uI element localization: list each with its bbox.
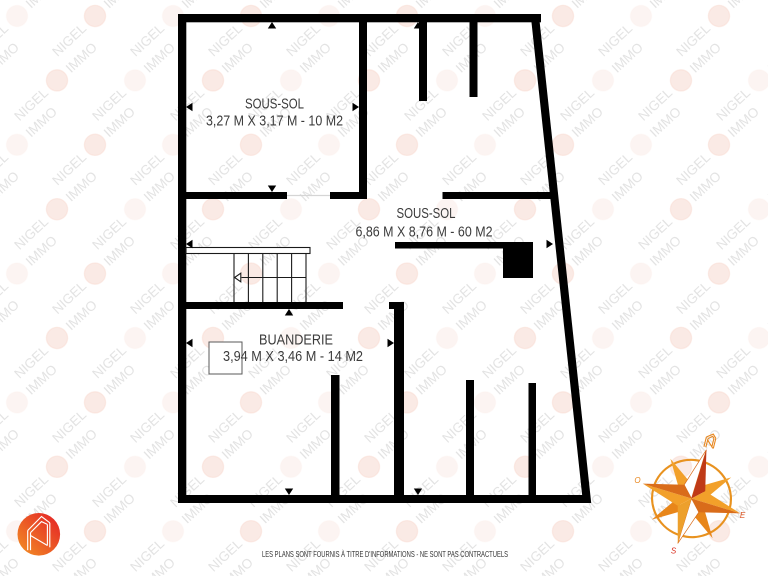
svg-text:3,27 M X 3,17 M - 10 M2: 3,27 M X 3,17 M - 10 M2 (206, 114, 343, 130)
svg-text:6,86 M X 8,76 M - 60 M2: 6,86 M X 8,76 M - 60 M2 (356, 225, 493, 241)
svg-text:LES PLANS SONT FOURNIS À TITRE: LES PLANS SONT FOURNIS À TITRE D'INFORMA… (262, 549, 508, 559)
svg-text:SOUS-SOL: SOUS-SOL (245, 97, 304, 113)
svg-text:3,94 M X 3,46 M - 14 M2: 3,94 M X 3,46 M - 14 M2 (223, 349, 363, 365)
svg-text:E: E (740, 511, 746, 520)
svg-text:O: O (634, 476, 640, 485)
svg-text:SOUS-SOL: SOUS-SOL (397, 206, 456, 222)
svg-text:S: S (671, 547, 677, 556)
svg-text:BUANDERIE: BUANDERIE (259, 333, 333, 349)
